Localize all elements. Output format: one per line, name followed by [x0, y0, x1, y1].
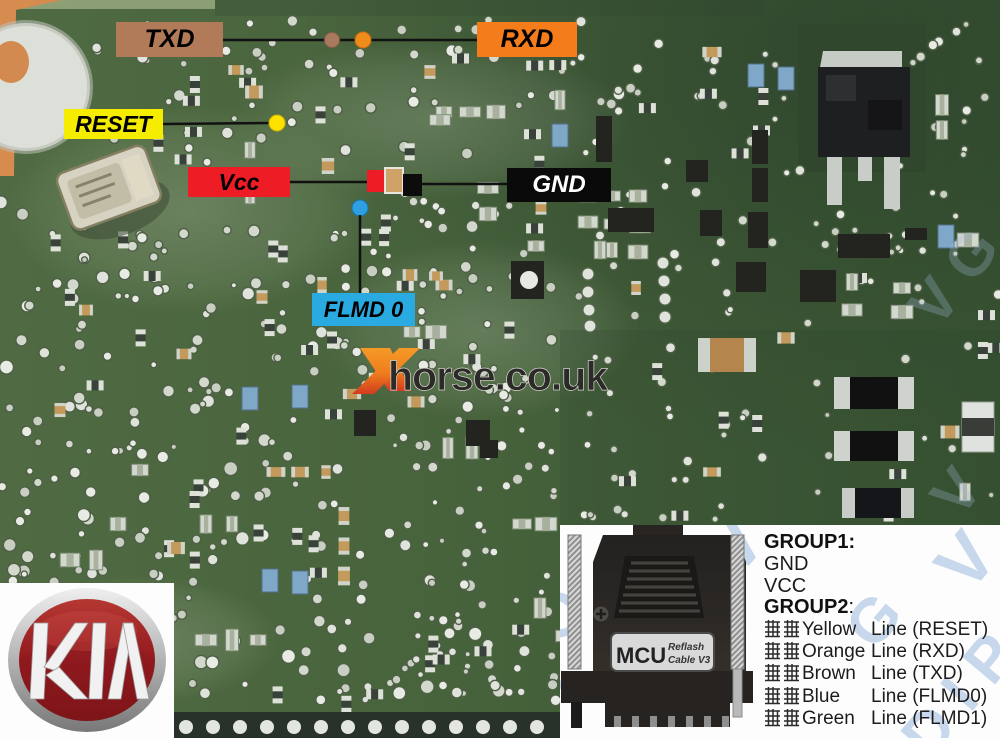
svg-text:MCU: MCU [616, 643, 666, 668]
svg-text:Reflash: Reflash [668, 642, 704, 653]
svg-text:Cable V3: Cable V3 [668, 655, 711, 666]
